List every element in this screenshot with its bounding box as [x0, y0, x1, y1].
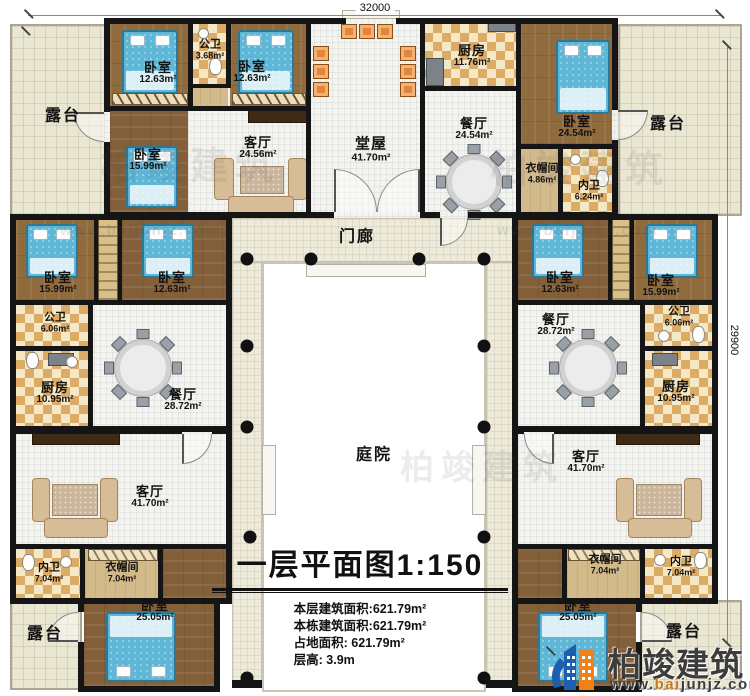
label-bedroom-ml1: 卧室15.99m² — [39, 271, 76, 295]
sink — [654, 554, 666, 566]
label-bedroom-tr: 卧室24.54m² — [558, 115, 595, 139]
hall-chair — [313, 64, 329, 79]
title-block: 一层平面图1:150 本层建筑面积:621.79m² 本栋建筑面积:621.79… — [212, 540, 508, 669]
stat-footprint-area: 占地面积: 621.79m² — [294, 635, 427, 652]
plan-stats: 本层建筑面积:621.79m² 本栋建筑面积:621.79m² 占地面积: 62… — [294, 601, 427, 669]
rug — [52, 484, 98, 516]
sofa — [100, 478, 118, 522]
rug — [636, 484, 682, 516]
sink — [66, 356, 78, 368]
label-dining-ml: 餐厅28.72m² — [164, 388, 201, 412]
hall-chair — [400, 64, 416, 79]
toilet — [26, 352, 39, 369]
watermark-url: www.baijunjz.com — [60, 222, 221, 239]
label-bath-bl: 内卫7.04m² — [35, 563, 64, 584]
title-rule-thin — [212, 592, 508, 593]
label-porch: 门廊 — [339, 230, 375, 247]
label-bedroom-mr1: 卧室12.63m² — [541, 271, 578, 295]
sink — [198, 28, 209, 39]
label-bedroom-br: 卧室25.05m² — [559, 599, 596, 623]
label-cloak-br: 衣帽间7.04m² — [589, 555, 622, 576]
label-cloak-tr: 衣帽间4.86m² — [526, 164, 559, 185]
label-dining-top: 餐厅24.54m² — [455, 117, 492, 141]
label-kitchen-top: 厨房11.76m² — [454, 44, 491, 68]
label-kitchen-ml: 厨房10.95m² — [36, 381, 73, 405]
title-rule — [212, 588, 508, 591]
stat-building-area: 本栋建筑面积:621.79m² — [294, 618, 427, 635]
label-living-bl: 客厅41.70m² — [131, 485, 168, 509]
hall-chair — [341, 24, 357, 39]
toilet — [694, 552, 707, 569]
hall-chair — [313, 46, 329, 61]
label-bedroom-tl-c: 卧室15.99m² — [129, 148, 166, 172]
dim-tick — [715, 9, 725, 19]
dimension-line-top — [28, 15, 722, 16]
label-terrace-tr: 露台 — [650, 117, 686, 134]
closet-tl-floor — [190, 86, 228, 108]
wardrobe — [88, 549, 158, 561]
column — [478, 421, 491, 434]
dining-table — [115, 340, 171, 396]
hall-chair — [400, 46, 416, 61]
label-kitchen-mr: 厨房10.95m² — [657, 380, 694, 404]
sofa — [616, 478, 634, 522]
bedroom-br-upper-floor — [518, 549, 562, 598]
label-bedroom-bl: 卧室25.05m² — [136, 599, 173, 623]
label-bath-mr: 公卫6.06m² — [665, 307, 694, 328]
watermark-url: www.baijunjz.com — [497, 222, 658, 239]
column — [478, 340, 491, 353]
sofa — [44, 518, 108, 538]
label-terrace-bl: 露台 — [27, 627, 63, 644]
label-bedroom-tl-b: 卧室12.63m² — [233, 60, 270, 84]
toilet — [692, 326, 705, 343]
wardrobe — [232, 93, 306, 105]
label-bath-ml: 公卫6.06m² — [41, 313, 70, 334]
hall-chair — [313, 82, 329, 97]
wardrobe — [112, 93, 188, 105]
logo: 柏竣建筑 www.baijunjz.com — [550, 636, 750, 696]
stat-floor-height: 层高: 3.9m — [294, 652, 427, 669]
label-bath-tr: 内卫6.24m² — [575, 181, 604, 202]
stat-floor-area: 本层建筑面积:621.79m² — [294, 601, 427, 618]
dimension-top: 32000 — [356, 2, 395, 14]
bed — [556, 40, 610, 114]
label-courtyard: 庭院 — [356, 448, 392, 465]
logo-url: www.baijunjz.com — [610, 676, 750, 693]
label-bedroom-mr2: 卧室15.99m² — [642, 274, 679, 298]
column — [478, 253, 491, 266]
label-dining-mr: 餐厅28.72m² — [537, 313, 574, 337]
label-living-top: 客厅24.56m² — [239, 136, 276, 160]
sofa — [628, 518, 692, 538]
hall-chair — [377, 24, 393, 39]
label-bath-br: 内卫7.04m² — [667, 557, 696, 578]
column — [305, 253, 318, 266]
column — [241, 253, 254, 266]
dimension-right: 29900 — [728, 321, 740, 360]
label-bedroom-tl-a: 卧室12.63m² — [139, 61, 176, 85]
sofa — [32, 478, 50, 522]
dim-tick — [24, 9, 34, 19]
courtyard-step-left — [262, 445, 276, 515]
hall-chair — [400, 82, 416, 97]
column — [413, 253, 426, 266]
label-hall: 堂屋41.70m² — [351, 137, 390, 164]
watermark-text: 柏竣建筑 — [400, 440, 564, 489]
hall-chair — [359, 24, 375, 39]
tv-cabinet — [248, 110, 308, 123]
sink — [658, 330, 670, 342]
dining-table — [560, 340, 616, 396]
plan-title: 一层平面图1:150 — [212, 540, 508, 584]
logo-building-icon — [550, 636, 606, 696]
label-bedroom-ml2: 卧室12.63m² — [153, 271, 190, 295]
floor-plan: 柏竣建筑 柏竣建筑 www.baijunjz.com 柏竣建筑 www.baij… — [0, 0, 750, 696]
courtyard-step-top — [306, 264, 426, 277]
stove — [426, 58, 444, 86]
label-living-br: 客厅41.70m² — [567, 450, 604, 474]
sofa — [684, 478, 702, 522]
column — [241, 340, 254, 353]
toilet — [209, 58, 222, 75]
column — [241, 421, 254, 434]
toilet — [22, 554, 35, 571]
label-bath-tl: 公卫3.68m² — [196, 40, 225, 61]
label-cloak-bl: 衣帽间7.04m² — [106, 563, 139, 584]
label-terrace-tl: 露台 — [45, 109, 81, 126]
sofa — [288, 158, 307, 200]
stove — [652, 353, 678, 366]
